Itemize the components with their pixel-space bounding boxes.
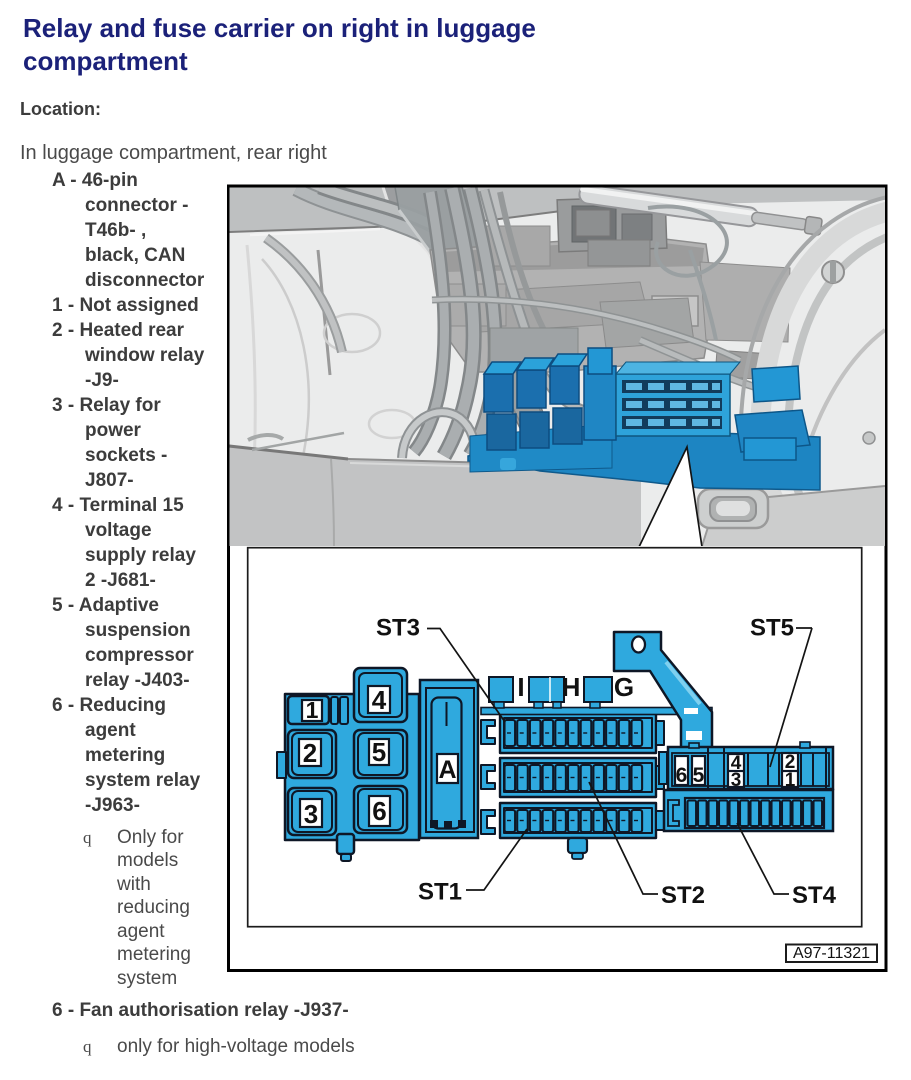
svg-text:ST4: ST4 [792, 882, 837, 909]
svg-text:1: 1 [306, 697, 319, 723]
svg-text:ST2: ST2 [661, 882, 705, 909]
svg-text:ST3: ST3 [376, 615, 420, 642]
svg-text:5: 5 [693, 764, 705, 787]
svg-text:3: 3 [304, 799, 318, 829]
svg-text:1: 1 [785, 770, 796, 791]
svg-text:I: I [517, 672, 524, 702]
svg-text:H: H [562, 672, 581, 702]
svg-text:4: 4 [372, 685, 387, 715]
svg-text:ST5: ST5 [750, 615, 794, 642]
svg-text:6: 6 [676, 764, 688, 787]
svg-text:3: 3 [731, 770, 742, 791]
svg-text:ST1: ST1 [418, 879, 462, 906]
svg-text:A: A [438, 756, 456, 784]
svg-text:2: 2 [303, 738, 317, 768]
svg-text:5: 5 [372, 737, 386, 767]
svg-text:G: G [614, 672, 634, 702]
svg-text:6: 6 [372, 796, 386, 826]
svg-text:A97-11321: A97-11321 [793, 945, 870, 962]
